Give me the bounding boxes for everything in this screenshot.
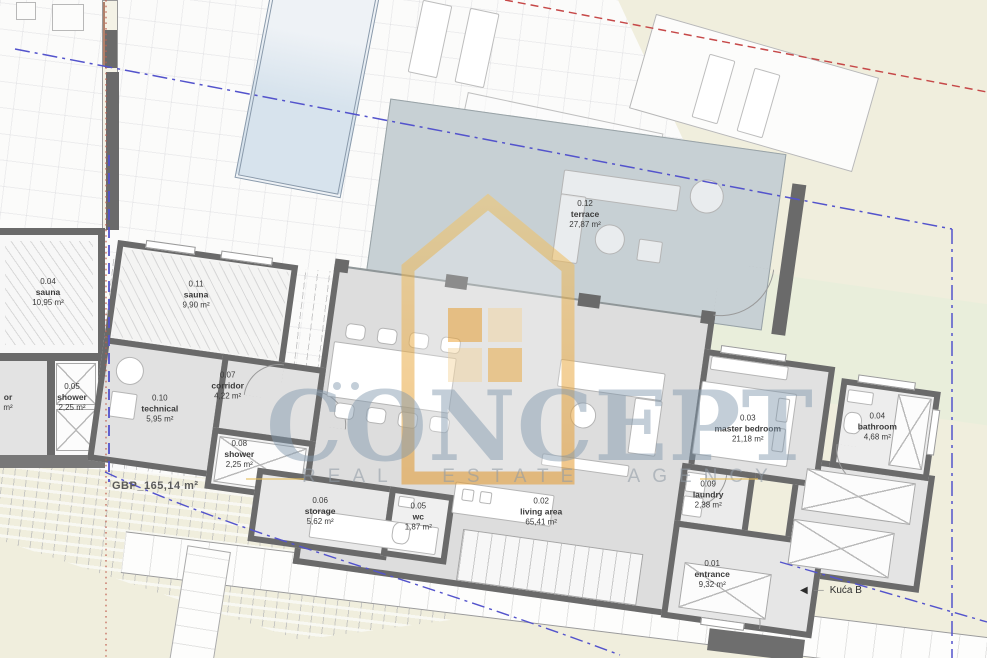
house-arrow-icon: ◀ <box>800 585 808 596</box>
room-label-entrance: 0.01entrance9,32 m² <box>662 559 762 591</box>
room-label-storage: 0.06storage5,62 m² <box>270 496 370 528</box>
dining-chair <box>344 323 366 342</box>
adjacent-building <box>0 228 105 462</box>
planter-box <box>16 2 36 20</box>
gross-area-label: GBP_165,14 m² <box>112 480 199 492</box>
glazing-post <box>334 258 350 273</box>
boundary-wall-segment <box>106 72 119 230</box>
planter-box <box>52 4 84 31</box>
watermark-brand-dots <box>333 382 341 390</box>
room-label-bathroom: 0.04bathroom4,68 m² <box>827 411 927 443</box>
room-label-adjacent-sauna: 0.04 sauna 10,95 m² <box>0 277 98 309</box>
room-label-clipped: or m² <box>0 392 38 413</box>
outdoor-chair <box>636 239 663 264</box>
room-label-living-area: 0.02living area65,41 m² <box>491 497 591 529</box>
boundary-wall-segment <box>105 30 117 68</box>
partition-wall <box>0 353 98 361</box>
house-reference: ◀—Kuća B <box>800 585 862 596</box>
watermark-rule-left <box>246 478 304 480</box>
room-label-technical: 0.10technical5,95 m² <box>110 393 210 425</box>
kitchen-sink <box>461 488 475 502</box>
floor-plan-canvas: 0.04 sauna 10,95 m² 0.05 shower 2,25 m² … <box>0 0 987 658</box>
watermark-tagline: REAL ESTATE AGENCY <box>302 466 780 488</box>
dining-chair <box>376 327 398 346</box>
house-reference-label: Kuća B <box>830 585 862 596</box>
watermark-rule-right <box>700 478 758 480</box>
room-label-sauna: 0.11sauna9,90 m² <box>146 279 246 311</box>
room-label-wc: 0.05wc1,87 m² <box>368 501 468 533</box>
